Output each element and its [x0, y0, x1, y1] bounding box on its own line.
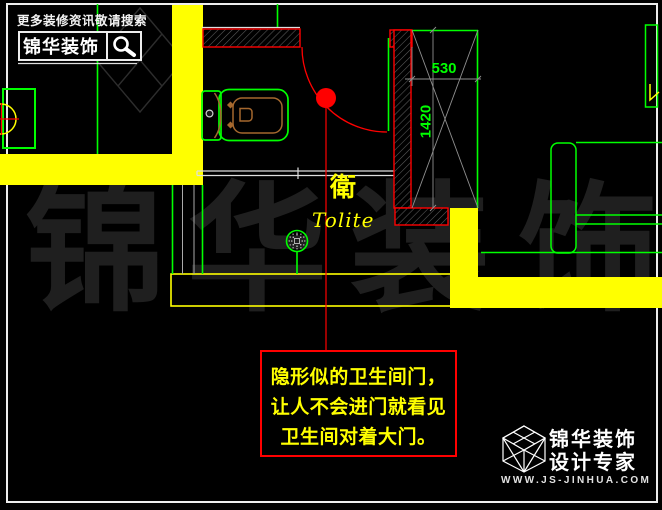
room-label-cn: 衛	[330, 175, 356, 201]
dimension-width-label: 530	[427, 61, 461, 76]
highlight-wall-outline	[171, 274, 452, 306]
door-marker-dot	[316, 88, 336, 108]
search-icon	[108, 34, 140, 58]
annotation-line: 隐形似的卫生间门，	[262, 363, 455, 393]
door-swing-arc	[302, 47, 387, 132]
sofa-outline	[481, 143, 662, 254]
annotation-callout-box: 隐形似的卫生间门， 让人不会进门就看见 卫生间对着大门。	[260, 350, 457, 457]
footer-website: WWW.JS-JINHUA.COM	[501, 475, 651, 486]
promo-search-box: 锦华装饰	[18, 31, 142, 61]
toilet-icon	[202, 90, 288, 141]
dimension-lines	[405, 27, 481, 211]
promo-brand-label: 锦华装饰	[20, 33, 106, 59]
cube-logo-icon	[502, 425, 546, 478]
floor-drain-icon	[287, 231, 308, 275]
room-label-en: Tolite	[312, 210, 375, 230]
promo-tagline: 更多装修资讯敬请搜索	[17, 10, 147, 29]
footer-brand: 锦华装饰	[549, 429, 637, 449]
cad-floorplan-screenshot: 锦 华 装 饰	[0, 0, 662, 510]
annotation-line: 让人不会进门就看见	[262, 393, 455, 423]
dimension-height-label: 1420	[419, 100, 434, 144]
footer-brand-tagline: 设计专家	[549, 452, 637, 472]
column-outline	[646, 25, 660, 107]
wall-inner-lines	[183, 185, 195, 274]
annotation-line: 卫生间对着大门。	[262, 423, 455, 453]
